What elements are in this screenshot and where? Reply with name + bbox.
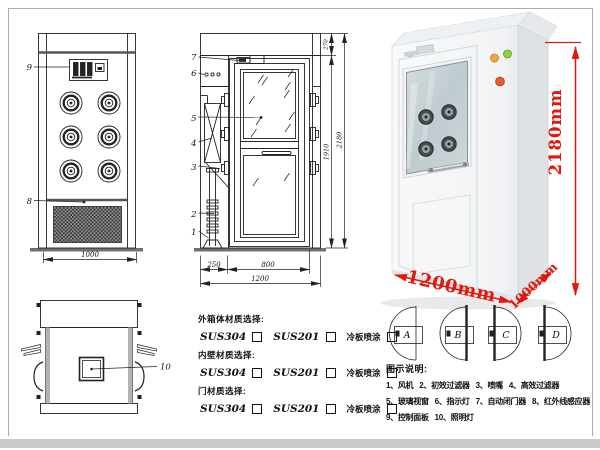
material-option-label: SUS304: [200, 367, 246, 379]
legend-item: 6、指示灯: [435, 396, 470, 407]
photo-glass-window: [407, 61, 468, 174]
photo-lower-panel: [413, 195, 470, 274]
svg-text:B: B: [454, 330, 462, 341]
material-checkbox[interactable]: [387, 332, 397, 342]
svg-text:800: 800: [261, 261, 275, 269]
legend-item: 1、风机: [386, 380, 413, 391]
material-checkbox[interactable]: [326, 368, 336, 378]
label-indicator-lights: 6: [191, 69, 197, 79]
svg-text:1000: 1000: [81, 251, 99, 259]
legend: 图示说明: 1、风机 2、初效过滤器 3、喷嘴 4、高效过滤器 5、玻璃视窗 6…: [386, 362, 596, 428]
label-grille: 8: [27, 197, 33, 207]
door-swing-options: A B C D: [390, 305, 572, 361]
material-group-title: 内壁材质选择:: [198, 349, 376, 361]
label-base: 1: [191, 228, 196, 238]
label-filter: 4: [190, 139, 196, 149]
air-grille: [54, 207, 122, 243]
front-view-drawing: 9 8 1000: [27, 34, 143, 264]
cabinet-side-face: [518, 25, 548, 297]
front-width-dimension: 1000: [44, 251, 137, 263]
material-group-title: 门材质选择:: [198, 385, 376, 397]
label-lamp: 10: [160, 363, 171, 373]
svg-text:270: 270: [324, 39, 330, 51]
material-checkbox[interactable]: [252, 332, 262, 342]
material-option-label: SUS304: [200, 403, 246, 415]
legend-item: 8、红外线感应器: [532, 396, 590, 407]
door-handle-right: [135, 362, 144, 391]
material-option-label: SUS201: [273, 403, 319, 415]
wall-nozzles-drawing: [222, 94, 319, 175]
open-door-leaves: [22, 345, 157, 356]
nozzles-front: [60, 92, 120, 182]
svg-text:1200: 1200: [251, 275, 269, 283]
door-option-d: D: [539, 305, 572, 361]
svg-text:2180: 2180: [336, 132, 344, 150]
side-height-dimensions: 270 1910 2180: [321, 34, 349, 249]
spec-sheet-page: 9 8 1000: [0, 0, 600, 450]
legend-item: 3、喷嘴: [476, 380, 503, 391]
material-option-label: 冷板喷涂: [347, 403, 381, 415]
material-checkbox[interactable]: [326, 332, 336, 342]
legend-title: 图示说明:: [386, 362, 596, 375]
legend-item: 10、照明灯: [435, 412, 474, 423]
photo-dim-height: 2180mm: [546, 89, 565, 176]
indicator-lights-drawing: [205, 73, 220, 76]
material-checkbox[interactable]: [252, 368, 262, 378]
svg-text:1910: 1910: [323, 144, 331, 161]
svg-text:D: D: [551, 330, 560, 341]
door-handle-drawing: [262, 152, 291, 155]
material-option-label: SUS201: [273, 367, 319, 379]
side-callouts: [199, 57, 263, 238]
door-handle-left: [34, 362, 43, 391]
svg-text:A: A: [403, 330, 411, 341]
side-view-drawing: 7 6 5 4 3 2 1 250 800 1200: [190, 34, 348, 288]
svg-text:250: 250: [206, 261, 221, 269]
material-checkbox[interactable]: [326, 404, 336, 414]
material-group: 内壁材质选择: SUS304 SUS201 冷板喷涂: [198, 349, 376, 379]
label-pipe: 2: [190, 210, 196, 220]
material-group-title: 外箱体材质选择:: [198, 313, 376, 325]
material-checkbox[interactable]: [252, 404, 262, 414]
top-view-drawing: 10: [22, 301, 172, 414]
label-nozzle: 3: [191, 163, 196, 173]
door-option-b: B: [440, 305, 474, 361]
control-panel-drawing: [70, 60, 108, 81]
material-selection: 外箱体材质选择: SUS304 SUS201 冷板喷涂 内壁材质选择: SUS3…: [198, 313, 376, 421]
filter-drawing: [201, 96, 221, 163]
svg-text:C: C: [502, 330, 510, 341]
material-group: 外箱体材质选择: SUS304 SUS201 冷板喷涂: [198, 313, 376, 343]
side-width-dimensions: 250 800 1200: [201, 250, 321, 287]
door-option-c: C: [489, 305, 522, 361]
door-section: [230, 59, 310, 247]
material-group: 门材质选择: SUS304 SUS201 冷板喷涂: [198, 385, 376, 415]
legend-item: 4、高效过滤器: [509, 380, 559, 391]
label-control-panel: 9: [27, 63, 33, 73]
legend-item: 7、自动闭门器: [476, 396, 526, 407]
label-glass-window: 5: [191, 114, 196, 124]
legend-item: 2、初效过滤器: [419, 380, 469, 391]
material-option-label: SUS304: [200, 331, 246, 343]
glass-hatch: [249, 69, 295, 186]
legend-item: 5、玻璃视窗: [386, 396, 429, 407]
material-option-label: 冷板喷涂: [347, 331, 381, 343]
product-photo: 2180mm 1200mm 1000mm: [380, 12, 581, 312]
legend-item: 9、控制面板: [386, 412, 429, 423]
material-option-label: SUS201: [273, 331, 319, 343]
label-door-closer: 7: [191, 53, 197, 63]
side-base: [194, 248, 326, 252]
door-closer-drawing: [237, 56, 264, 64]
material-option-label: 冷板喷涂: [347, 367, 381, 379]
